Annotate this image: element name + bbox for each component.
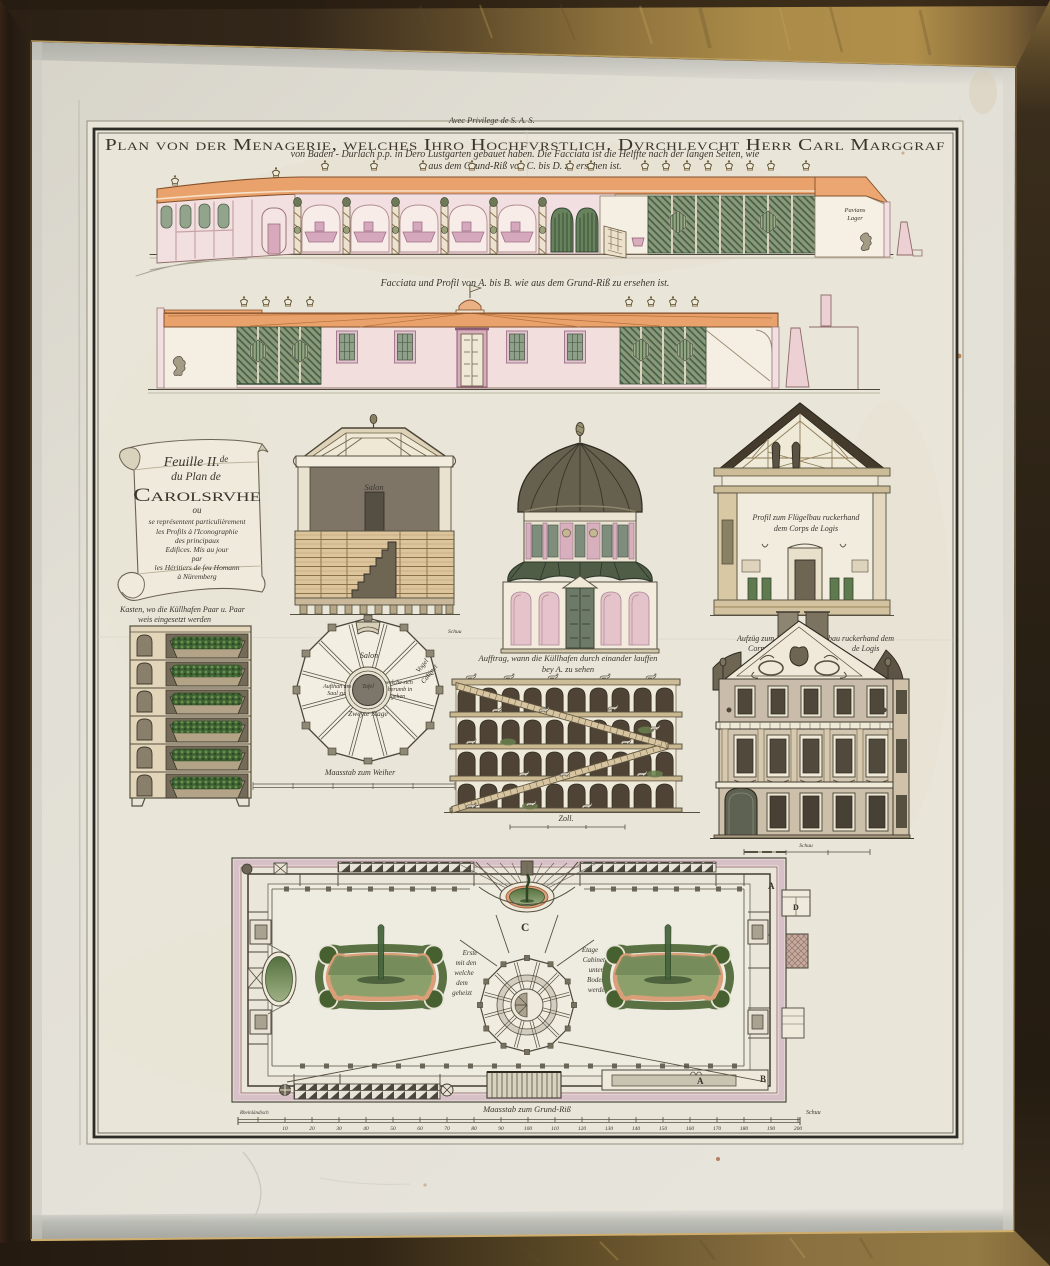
svg-text:von Baden - Durlach p.p. in De: von Baden - Durlach p.p. in Dero Lustgar… <box>291 149 760 160</box>
svg-text:160: 160 <box>686 1126 695 1132</box>
svg-text:120: 120 <box>578 1126 587 1132</box>
svg-text:Profil zum Flügelbau ruckerhan: Profil zum Flügelbau ruckerhand <box>752 513 861 522</box>
svg-text:dem: dem <box>456 979 468 987</box>
svg-text:A: A <box>768 881 775 891</box>
svg-text:les Profils à l'Iconographie: les Profils à l'Iconographie <box>156 527 239 536</box>
svg-text:Facciata und Profil von A. bis: Facciata und Profil von A. bis B. wie au… <box>380 278 670 289</box>
svg-text:des principaux: des principaux <box>175 536 220 545</box>
svg-text:Aufthan um: Aufthan um <box>322 683 351 690</box>
svg-text:geheizt: geheizt <box>452 989 473 997</box>
svg-text:90: 90 <box>498 1126 504 1132</box>
svg-text:170: 170 <box>713 1126 722 1132</box>
svg-text:Tafel: Tafel <box>362 683 374 690</box>
svg-text:140: 140 <box>632 1125 641 1132</box>
svg-text:herumb in: herumb in <box>388 687 413 693</box>
svg-text:40: 40 <box>363 1125 369 1132</box>
svg-text:à Nüremberg: à Nüremberg <box>177 572 216 581</box>
svg-text:Maasstab zum Grund-Riß: Maasstab zum Grund-Riß <box>482 1104 572 1114</box>
svg-text:welche: welche <box>454 969 473 977</box>
svg-text:mit den: mit den <box>456 959 477 967</box>
svg-text:Zweyte Stage: Zweyte Stage <box>348 709 388 718</box>
svg-text:les Héritiers de feu Homann: les Héritiers de feu Homann <box>155 563 240 572</box>
svg-text:Saal zu: Saal zu <box>327 691 345 697</box>
svg-text:180: 180 <box>740 1126 749 1132</box>
svg-text:A: A <box>697 1076 704 1086</box>
svg-text:Aufftrag, wann die Küllhafen d: Aufftrag, wann die Küllhafen durch einan… <box>478 653 658 663</box>
svg-text:30: 30 <box>335 1126 342 1132</box>
svg-text:20: 20 <box>309 1126 315 1132</box>
svg-text:C: C <box>521 922 529 934</box>
svg-text:Carolsrvhe: Carolsrvhe <box>133 486 261 506</box>
svg-text:weis eingesetzt werden: weis eingesetzt werden <box>138 615 211 624</box>
svg-text:200: 200 <box>794 1126 803 1132</box>
svg-text:du Plan de: du Plan de <box>171 471 221 483</box>
svg-text:60: 60 <box>417 1126 423 1132</box>
svg-text:bau ruckerhand dem: bau ruckerhand dem <box>828 634 894 643</box>
svg-text:Maasstab zum Weiher: Maasstab zum Weiher <box>324 768 396 777</box>
svg-text:se représentent particulièreme: se représentent particulièrement <box>149 517 247 526</box>
svg-text:110: 110 <box>551 1126 559 1132</box>
svg-text:Avec Privilege de S. A. S.: Avec Privilege de S. A. S. <box>448 115 535 125</box>
svg-text:par: par <box>191 554 203 563</box>
svg-text:100: 100 <box>524 1126 533 1132</box>
svg-text:Feuille II.de: Feuille II.de <box>163 454 228 470</box>
svg-text:Salon: Salon <box>364 482 383 492</box>
svg-text:Lager: Lager <box>846 215 863 222</box>
svg-text:unter: unter <box>589 966 604 974</box>
svg-text:Rheinländisch: Rheinländisch <box>239 1111 269 1116</box>
svg-text:Pavians: Pavians <box>844 207 866 214</box>
svg-text:50: 50 <box>390 1126 396 1132</box>
svg-text:190: 190 <box>767 1126 776 1132</box>
svg-text:Zoll.: Zoll. <box>559 814 574 823</box>
svg-text:de Logis: de Logis <box>852 644 879 653</box>
svg-text:Schuu: Schuu <box>799 843 813 849</box>
svg-text:Schuu: Schuu <box>448 629 462 635</box>
svg-text:bey A. zu sehen: bey A. zu sehen <box>542 664 594 674</box>
svg-text:Schuu: Schuu <box>806 1110 821 1116</box>
svg-text:B: B <box>760 1074 766 1084</box>
svg-text:80: 80 <box>471 1126 477 1132</box>
svg-text:Edifices. Mis au jour: Edifices. Mis au jour <box>165 545 229 554</box>
svg-text:70: 70 <box>444 1126 450 1132</box>
svg-text:welche sich: welche sich <box>385 680 413 686</box>
svg-text:Salon: Salon <box>360 651 378 660</box>
svg-text:D: D <box>793 903 799 912</box>
svg-text:ou: ou <box>193 505 203 515</box>
svg-text:Kasten, wo die Küllhafen Paar: Kasten, wo die Küllhafen Paar u. Paar <box>119 605 246 614</box>
svg-text:130: 130 <box>605 1126 614 1132</box>
svg-text:dem Corps de Logis: dem Corps de Logis <box>774 524 838 533</box>
svg-text:gehen: gehen <box>391 694 405 700</box>
svg-text:10: 10 <box>282 1126 288 1132</box>
svg-text:150: 150 <box>659 1126 668 1132</box>
